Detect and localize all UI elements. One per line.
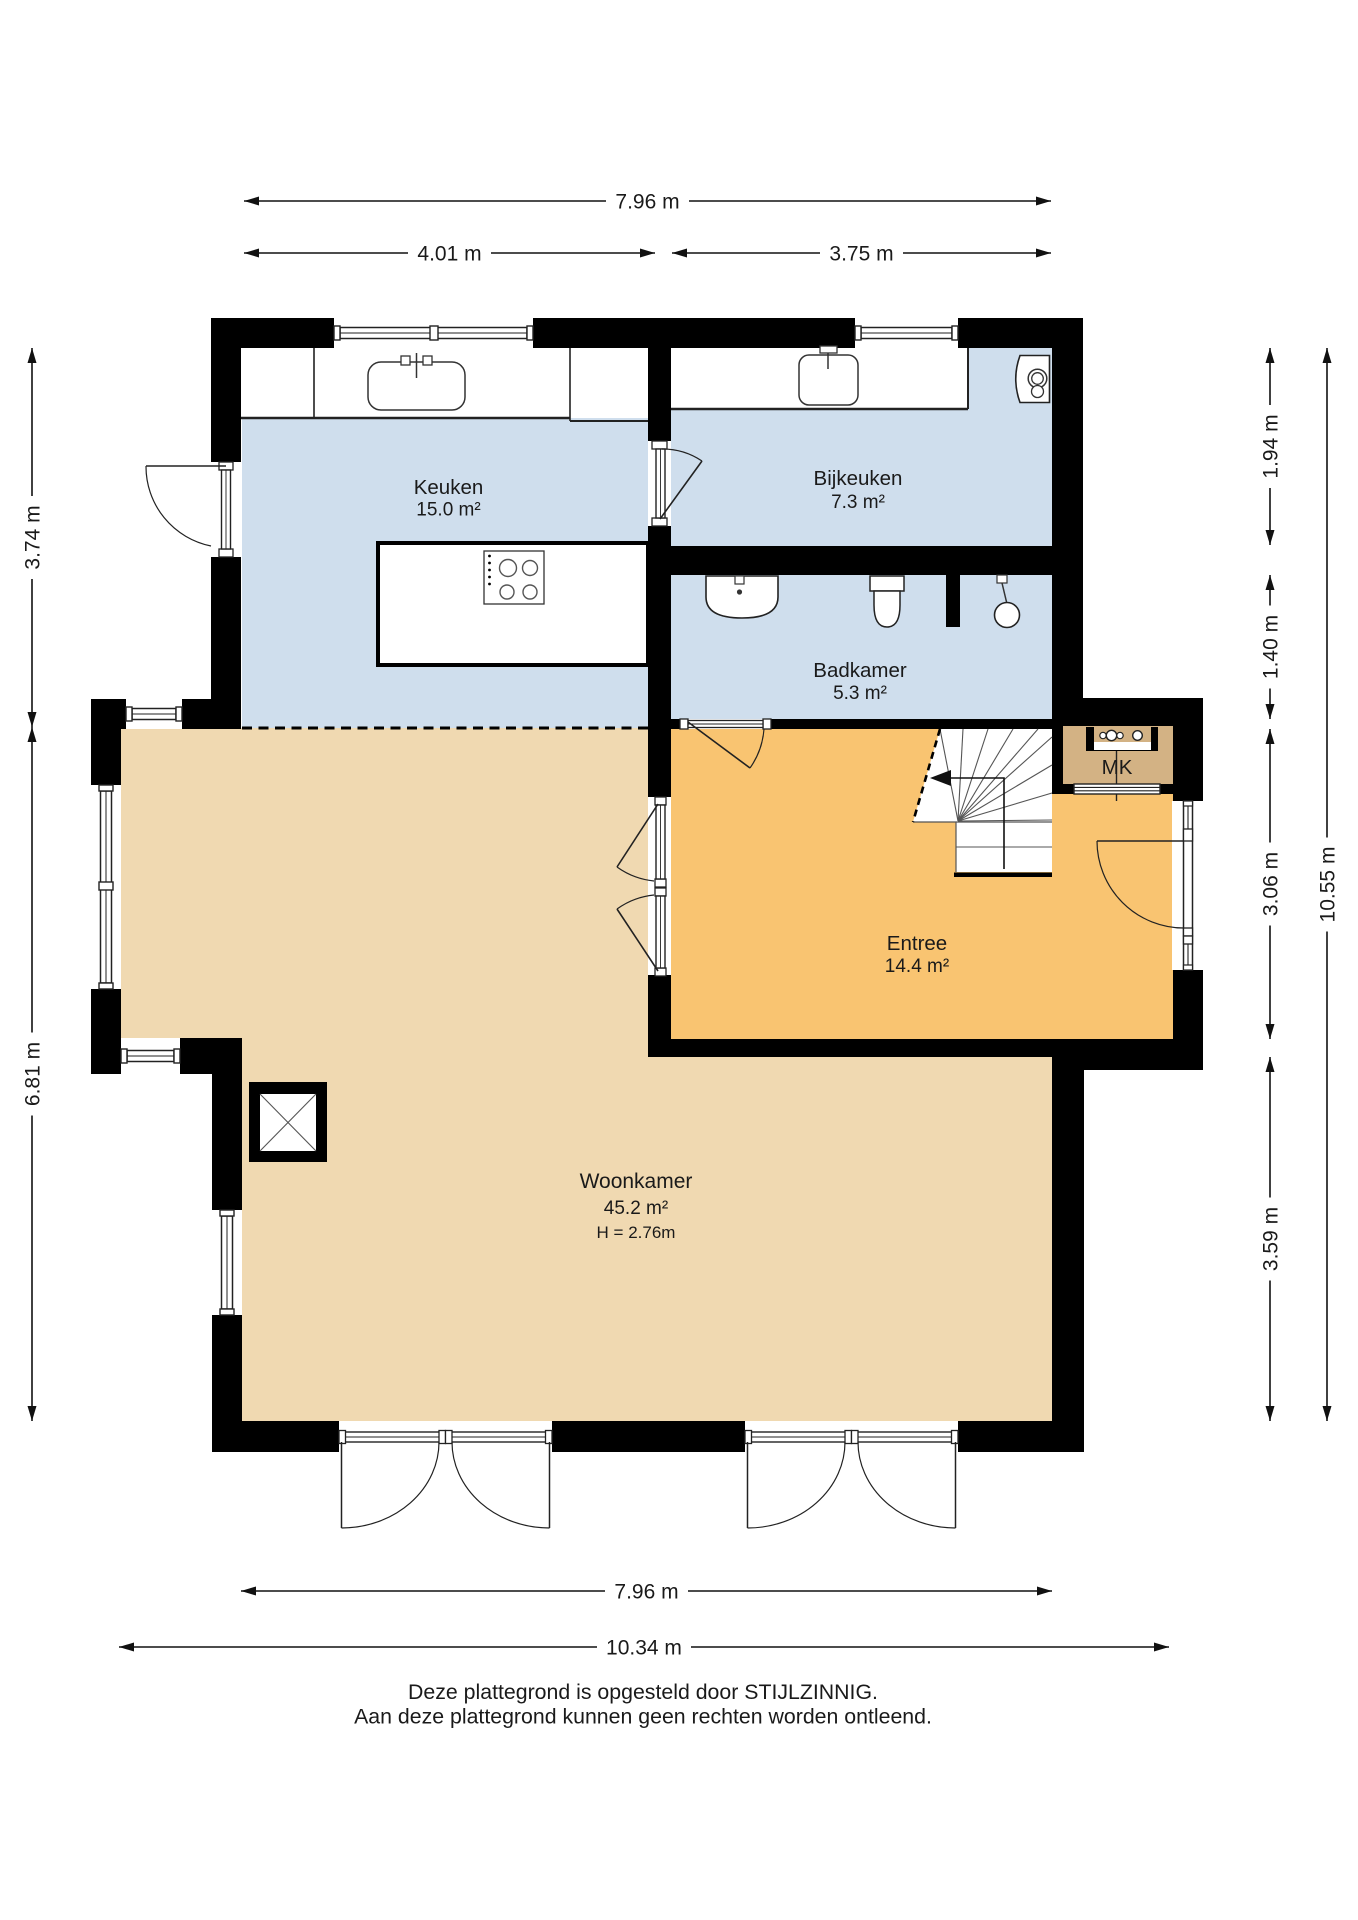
svg-text:3.75 m: 3.75 m: [829, 243, 893, 266]
svg-text:1.94 m: 1.94 m: [1260, 414, 1283, 478]
svg-text:H = 2.76m: H = 2.76m: [597, 1223, 676, 1242]
svg-text:1.40 m: 1.40 m: [1260, 615, 1283, 679]
svg-text:45.2 m²: 45.2 m²: [604, 1198, 668, 1219]
svg-text:3.06 m: 3.06 m: [1260, 852, 1283, 916]
svg-text:Badkamer: Badkamer: [813, 659, 907, 682]
svg-text:7.96 m: 7.96 m: [615, 191, 679, 214]
svg-text:Keuken: Keuken: [414, 476, 484, 499]
svg-text:MK: MK: [1102, 756, 1133, 779]
svg-text:14.4 m²: 14.4 m²: [885, 956, 949, 977]
svg-text:10.55 m: 10.55 m: [1317, 847, 1340, 923]
svg-text:7.3 m²: 7.3 m²: [831, 492, 885, 513]
svg-text:Entree: Entree: [887, 932, 947, 955]
svg-text:7.96 m: 7.96 m: [614, 1581, 678, 1604]
svg-text:Bijkeuken: Bijkeuken: [814, 467, 903, 490]
svg-text:15.0 m²: 15.0 m²: [416, 500, 480, 521]
svg-text:10.34 m: 10.34 m: [606, 1637, 682, 1660]
svg-text:Woonkamer: Woonkamer: [580, 1170, 693, 1193]
svg-text:Deze plattegrond is opgesteld: Deze plattegrond is opgesteld door STIJL…: [408, 1680, 878, 1704]
svg-text:Aan deze plattegrond kunnen ge: Aan deze plattegrond kunnen geen rechten…: [354, 1705, 932, 1729]
svg-text:3.74 m: 3.74 m: [22, 505, 45, 569]
svg-text:4.01 m: 4.01 m: [417, 243, 481, 266]
svg-text:3.59 m: 3.59 m: [1260, 1207, 1283, 1271]
svg-text:6.81 m: 6.81 m: [22, 1042, 45, 1106]
svg-text:5.3 m²: 5.3 m²: [833, 683, 887, 704]
